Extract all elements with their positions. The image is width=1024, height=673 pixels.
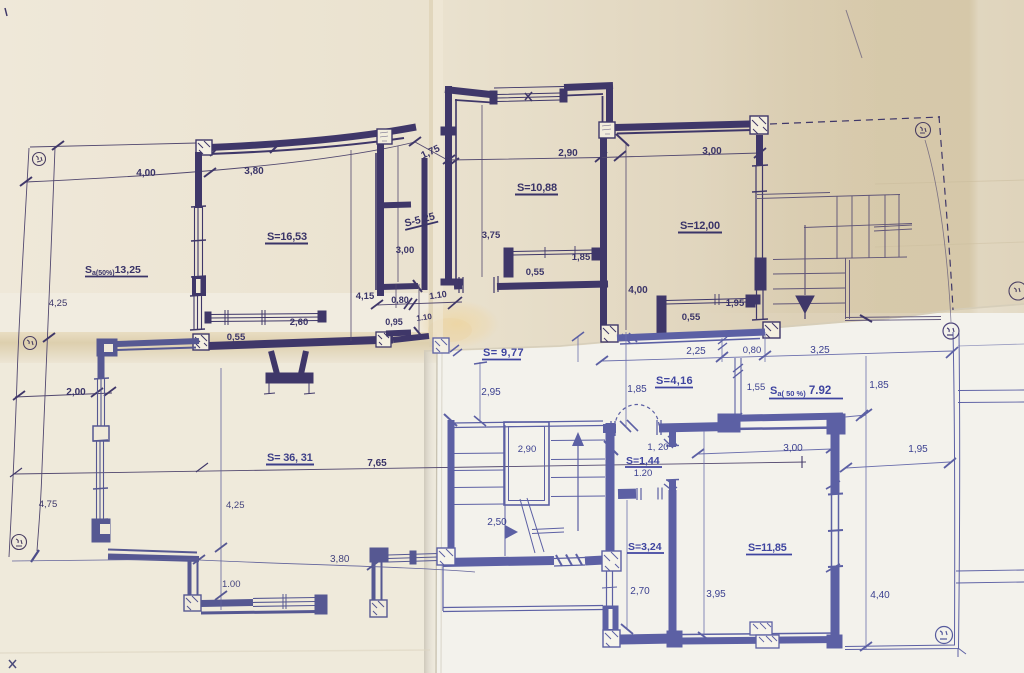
svg-text:3,25: 3,25 [810, 345, 830, 356]
svg-text:2,90: 2,90 [518, 444, 537, 455]
svg-text:S=10,88: S=10,88 [517, 182, 557, 194]
svg-text:S=16,53: S=16,53 [267, 231, 307, 243]
svg-text:4,25: 4,25 [226, 500, 245, 511]
svg-text:1,95: 1,95 [726, 298, 745, 309]
svg-text:S=3,24: S=3,24 [628, 541, 662, 553]
svg-text:2,00: 2,00 [66, 387, 86, 398]
svg-text:3,95: 3,95 [706, 589, 726, 600]
svg-text:4,00: 4,00 [628, 285, 648, 296]
svg-text:1,95: 1,95 [908, 444, 928, 455]
svg-text:2,25: 2,25 [686, 346, 706, 357]
svg-text:2,90: 2,90 [558, 148, 578, 159]
svg-text:2,60: 2,60 [290, 317, 309, 328]
svg-text:7,65: 7,65 [367, 458, 387, 469]
svg-text:3,00: 3,00 [783, 443, 803, 454]
svg-text:2,70: 2,70 [630, 586, 650, 597]
svg-text:1,85: 1,85 [627, 384, 647, 395]
svg-text:1, 20: 1, 20 [647, 442, 668, 453]
svg-text:S= 9,77: S= 9,77 [483, 347, 524, 359]
svg-text:1,85: 1,85 [572, 252, 591, 263]
svg-text:3,80: 3,80 [330, 554, 350, 565]
svg-text:2,50: 2,50 [487, 517, 507, 528]
svg-text:4,40: 4,40 [870, 590, 890, 601]
svg-text:0,55: 0,55 [227, 332, 246, 343]
svg-text:4,25: 4,25 [49, 298, 68, 309]
svg-text:S= 36, 31: S= 36, 31 [267, 452, 313, 464]
svg-text:4,75: 4,75 [39, 499, 58, 510]
svg-text:1.20: 1.20 [634, 468, 653, 479]
svg-text:1.00: 1.00 [222, 579, 241, 590]
svg-text:3,00: 3,00 [702, 146, 722, 157]
svg-text:3,00: 3,00 [396, 245, 415, 256]
svg-text:0,80: 0,80 [391, 295, 409, 305]
svg-text:S=12,00: S=12,00 [680, 220, 720, 232]
svg-text:3,80: 3,80 [244, 166, 264, 177]
svg-text:0,80: 0,80 [743, 345, 762, 356]
svg-text:0,55: 0,55 [682, 312, 701, 323]
svg-text:1,85: 1,85 [869, 380, 889, 391]
svg-text:0,95: 0,95 [385, 317, 403, 327]
svg-text:S=11,85: S=11,85 [748, 542, 787, 554]
svg-text:3,75: 3,75 [482, 230, 501, 241]
svg-text:1,55: 1,55 [747, 382, 766, 393]
svg-text:4,00: 4,00 [136, 168, 156, 179]
svg-text:0,55: 0,55 [526, 267, 545, 278]
svg-text:S=1,44: S=1,44 [626, 455, 660, 467]
svg-text:4,15: 4,15 [356, 291, 375, 302]
svg-text:S=4,16: S=4,16 [656, 375, 693, 387]
svg-text:2,95: 2,95 [481, 387, 501, 398]
